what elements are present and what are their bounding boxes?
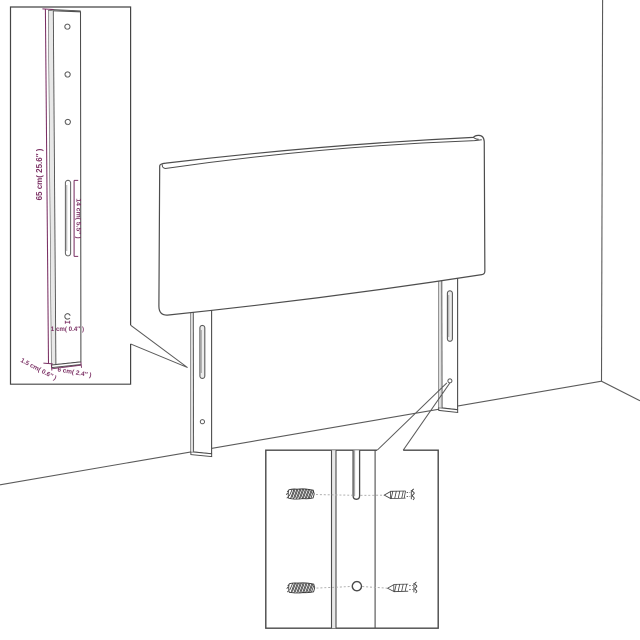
svg-text:14 cm( 5.5″ ): 14 cm( 5.5″ ) xyxy=(74,198,81,238)
svg-text:65 cm( 25.6″ ): 65 cm( 25.6″ ) xyxy=(35,148,44,200)
svg-text:1 cm( 0.4″ ): 1 cm( 0.4″ ) xyxy=(51,326,84,333)
